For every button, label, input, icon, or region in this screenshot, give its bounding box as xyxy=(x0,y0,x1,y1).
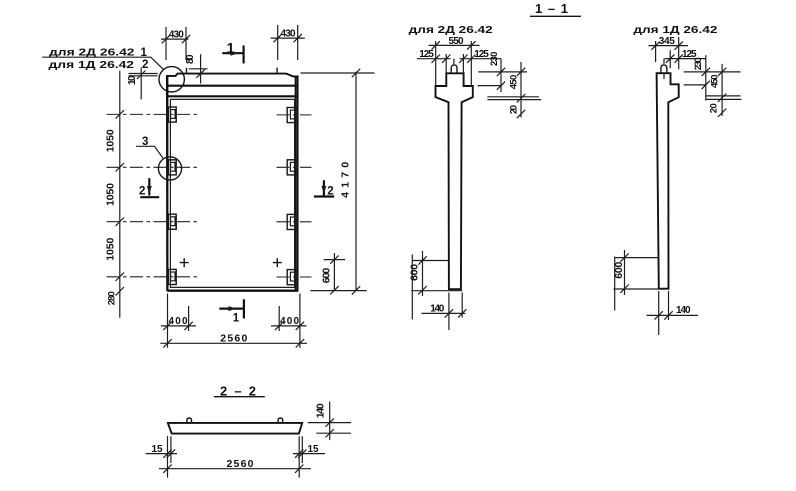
svg-text:для 2Д 26.42: для 2Д 26.42 xyxy=(409,25,494,36)
svg-text:140: 140 xyxy=(314,403,326,418)
svg-text:1–1: 1–1 xyxy=(535,1,568,16)
svg-text:для 1Д 26.42: для 1Д 26.42 xyxy=(633,25,718,36)
svg-text:2560: 2560 xyxy=(220,332,247,344)
svg-text:430: 430 xyxy=(169,29,184,40)
svg-text:140: 140 xyxy=(676,305,691,316)
svg-text:15: 15 xyxy=(307,444,319,455)
svg-text:280: 280 xyxy=(107,291,118,305)
svg-text:550: 550 xyxy=(449,36,464,47)
svg-text:400: 400 xyxy=(169,316,188,327)
svg-text:230: 230 xyxy=(693,57,704,70)
svg-text:1050: 1050 xyxy=(105,238,117,261)
svg-text:140: 140 xyxy=(430,303,444,314)
svg-text:2: 2 xyxy=(139,186,145,198)
svg-text:450: 450 xyxy=(508,75,519,90)
svg-text:450: 450 xyxy=(709,74,720,88)
svg-text:600: 600 xyxy=(408,264,420,281)
svg-text:20: 20 xyxy=(708,103,719,113)
svg-text:10: 10 xyxy=(127,75,138,85)
svg-text:2560: 2560 xyxy=(227,458,254,470)
svg-text:20: 20 xyxy=(509,105,520,114)
svg-text:1050: 1050 xyxy=(105,129,117,152)
svg-text:125: 125 xyxy=(419,49,434,60)
svg-text:1: 1 xyxy=(233,312,240,324)
svg-text:600: 600 xyxy=(320,268,332,284)
svg-text:230: 230 xyxy=(489,52,500,67)
svg-text:345: 345 xyxy=(659,36,675,47)
svg-text:600: 600 xyxy=(613,262,625,279)
svg-text:430: 430 xyxy=(281,28,296,39)
svg-text:15: 15 xyxy=(151,444,163,455)
svg-text:80: 80 xyxy=(185,54,196,64)
svg-text:1050: 1050 xyxy=(105,183,117,206)
svg-text:4170: 4170 xyxy=(340,162,352,198)
svg-text:400: 400 xyxy=(280,316,299,327)
svg-text:125: 125 xyxy=(474,49,489,60)
svg-text:для 1Д 26.42: для 1Д 26.42 xyxy=(49,60,135,71)
svg-text:1: 1 xyxy=(226,41,234,57)
svg-text:2: 2 xyxy=(142,59,148,71)
